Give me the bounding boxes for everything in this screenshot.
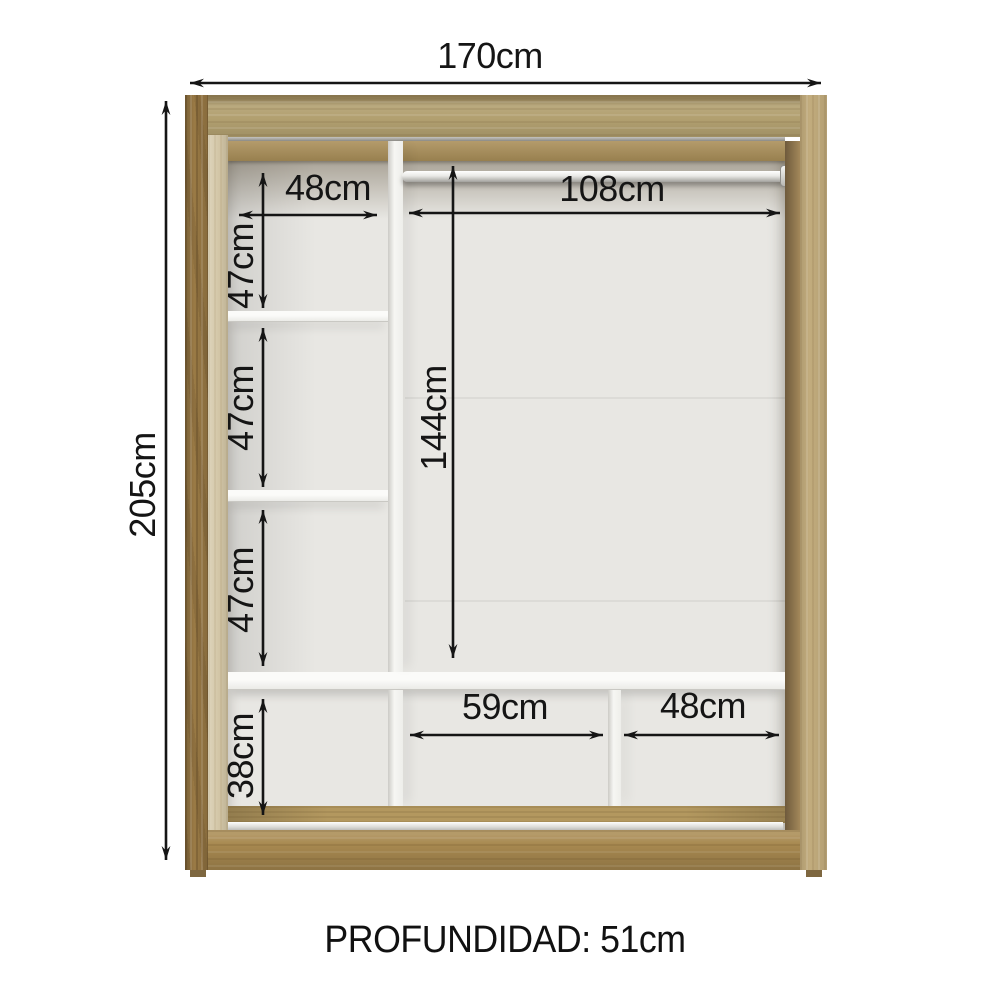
- dim-label-bottom-middle: 59cm: [462, 689, 548, 725]
- dim-label-bottom-row-height: 38cm: [223, 713, 259, 799]
- bottom-divider-right: [608, 690, 621, 808]
- wardrobe-base-panel: [208, 830, 800, 870]
- wardrobe-dimension-diagram: 170cm 205cm 48cm 108cm 47cm 47cm 47cm 14…: [0, 0, 1000, 1000]
- back-panel-seam: [405, 600, 785, 602]
- depth-caption: PROFUNDIDAD: 51cm: [324, 921, 685, 959]
- dim-label-total-width: 170cm: [437, 38, 543, 74]
- wardrobe-foot-right: [806, 870, 822, 877]
- left-column-shelf-2: [228, 490, 388, 502]
- vertical-divider-main: [388, 141, 403, 672]
- back-panel-seam: [405, 397, 785, 399]
- wardrobe-left-side-panel: [185, 95, 208, 870]
- bottom-divider-left: [388, 690, 403, 808]
- interior-ceiling-panel: [228, 141, 785, 161]
- wardrobe-top-panel: [185, 95, 827, 137]
- wardrobe-foot-left: [190, 870, 206, 877]
- dim-label-total-height: 205cm: [125, 432, 161, 538]
- interior-floor-panel: [228, 806, 785, 823]
- dim-label-left-gap-middle: 47cm: [223, 365, 259, 451]
- dim-label-left-column-width: 48cm: [285, 170, 371, 206]
- left-column-shelf-1: [228, 311, 388, 322]
- wardrobe-right-side-panel: [800, 95, 827, 870]
- dim-label-left-gap-lower: 47cm: [223, 547, 259, 633]
- right-side-inner-face: [785, 141, 800, 831]
- dim-label-bottom-right: 48cm: [660, 688, 746, 724]
- dim-label-hanging-height: 144cm: [416, 365, 452, 471]
- dim-label-rod-span-width: 108cm: [559, 171, 665, 207]
- dim-label-left-gap-top: 47cm: [223, 223, 259, 309]
